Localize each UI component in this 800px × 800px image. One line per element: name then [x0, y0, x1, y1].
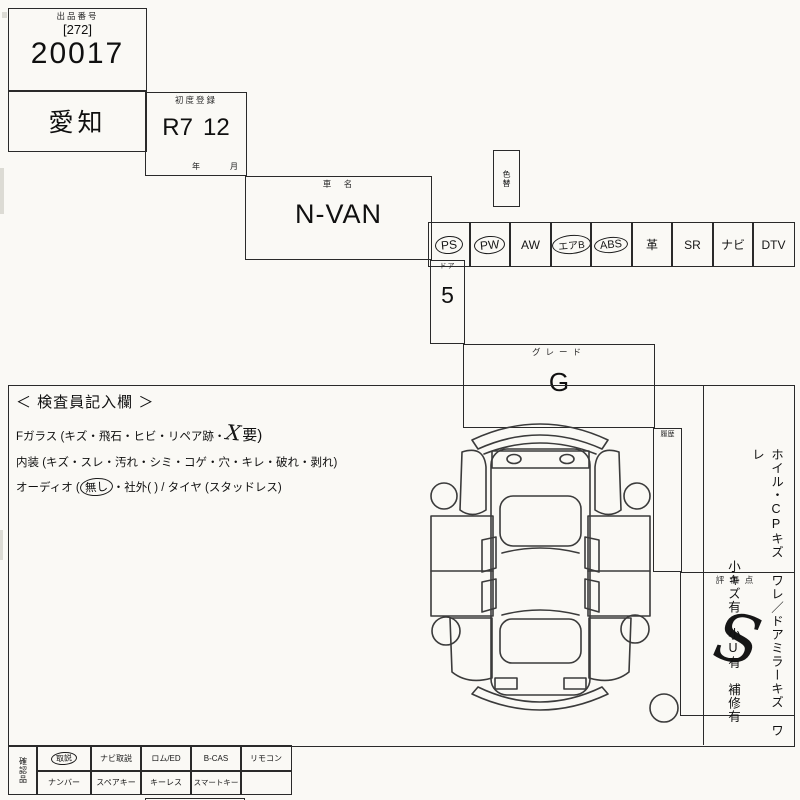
check-grid-item: B-CAS	[204, 754, 228, 763]
equipment-item-7: ナビ	[712, 222, 754, 267]
check-grid-item: ロム/ED	[151, 753, 180, 764]
scan-smudge	[2, 12, 7, 18]
equipment-item-label: ナビ	[721, 236, 745, 253]
color-change-cell: 色替	[493, 150, 520, 207]
door-count: 5	[441, 282, 454, 309]
grid2-item-0: ナンバー	[36, 770, 92, 795]
grid2-item-4	[240, 770, 292, 795]
fglass-line: Fガラス (キズ・飛石・ヒビ・リペア跡・	[16, 431, 225, 443]
audio-none-circled: 無し	[79, 477, 113, 497]
car-diagram	[418, 388, 700, 745]
equipment-item-5: 革	[631, 222, 673, 267]
check-grid-item: ナンバー	[48, 777, 80, 788]
inspector-notes: ＜ 検査員記入欄 ＞ Fガラス (キズ・飛石・ヒビ・リペア跡・X要) 内装 (キ…	[16, 391, 446, 496]
equipment-item-4: ABS	[590, 222, 633, 267]
equipment-item-label: ABS	[594, 235, 629, 254]
first-reg-era: R7	[162, 114, 193, 142]
check-grid-item: スマートキー	[194, 777, 239, 788]
fglass-handwritten-x: X	[225, 420, 242, 445]
grid1-item-3: B-CAS	[190, 745, 242, 772]
equipment-item-label: PW	[474, 234, 507, 255]
car-name: N-VAN	[295, 199, 382, 230]
first-registration-cell: 初度登録 R7 12 年 月	[145, 92, 247, 176]
first-reg-year-unit: 年	[192, 161, 200, 172]
check-grid-item: スペアキー	[96, 777, 135, 788]
region-value: 愛知	[48, 103, 106, 139]
equipment-item-0: PS	[428, 222, 471, 267]
audio-suffix: ・社外( ) / タイヤ (スタッドレス)	[113, 482, 282, 494]
auction-bracket: [272]	[9, 22, 146, 37]
interior-condition-line: 内装 (キズ・スレ・汚れ・シミ・コゲ・穴・キレ・破れ・剥れ)	[16, 454, 446, 470]
equipment-item-label: DTV	[762, 238, 786, 252]
grid1-item-4: リモコン	[240, 745, 292, 772]
car-top-view	[418, 388, 700, 745]
equipment-item-1: PW	[469, 222, 511, 267]
auction-number-label: 出品番号	[9, 9, 146, 22]
grid2-item-3: スマートキー	[190, 770, 242, 795]
sidebar-divider	[703, 385, 704, 745]
grid2-item-1: スペアキー	[90, 770, 142, 795]
grid1-item-1: ナビ取説	[90, 745, 142, 772]
equipment-item-8: DTV	[752, 222, 795, 267]
first-reg-month: 12	[203, 114, 230, 142]
first-registration-label: 初度登録	[146, 93, 246, 106]
auction-sheet: 出品番号 [272] 20017 初度登録 R7 12 年 月 車 名 N-VA…	[0, 0, 800, 800]
region-cell: 愛知	[8, 90, 147, 152]
equipment-item-label: エアB	[551, 233, 591, 255]
sidebar-note-left: 小キズ有 小U有 補修有	[724, 560, 743, 745]
color-change-label: 色替	[501, 170, 512, 188]
inspector-title: ＜ 検査員記入欄 ＞	[16, 391, 446, 412]
grid2-item-2: キーレス	[140, 770, 192, 795]
check-grid-item: 取説	[51, 751, 78, 766]
grid1-item-2: ロム/ED	[140, 745, 192, 772]
scan-smudge	[0, 530, 3, 560]
door-cell: ドア 5	[430, 260, 465, 344]
check-items-label-cell: 確認品	[8, 745, 38, 795]
sidebar-note-right: ホイル・CPキズ ワレ／ドアミラーキズ ワレ	[748, 448, 786, 742]
fglass-suffix: 要)	[242, 427, 262, 444]
auction-number: 20017	[9, 37, 146, 71]
first-reg-month-unit: 月	[230, 161, 238, 172]
car-name-label: 車 名	[246, 177, 431, 190]
check-items-label: 確認品	[18, 757, 29, 784]
equipment-item-label: PS	[435, 234, 464, 254]
equipment-item-label: SR	[684, 238, 701, 252]
scan-smudge	[0, 168, 4, 214]
check-grid-item: ナビ取説	[100, 753, 132, 764]
auction-number-cell: 出品番号 [272] 20017	[8, 8, 147, 92]
car-name-cell: 車 名 N-VAN	[245, 176, 432, 260]
equipment-item-label: AW	[521, 238, 540, 252]
equipment-item-2: AW	[509, 222, 552, 267]
equipment-item-3: エアB	[550, 222, 592, 267]
check-grid-item: リモコン	[250, 753, 282, 764]
grade-label: グレード	[464, 345, 654, 358]
grid1-item-0: 取説	[36, 745, 92, 772]
equipment-item-label: 革	[646, 236, 658, 253]
equipment-item-6: SR	[671, 222, 714, 267]
audio-line: オーディオ (	[16, 482, 80, 494]
check-grid-item: キーレス	[150, 777, 182, 788]
